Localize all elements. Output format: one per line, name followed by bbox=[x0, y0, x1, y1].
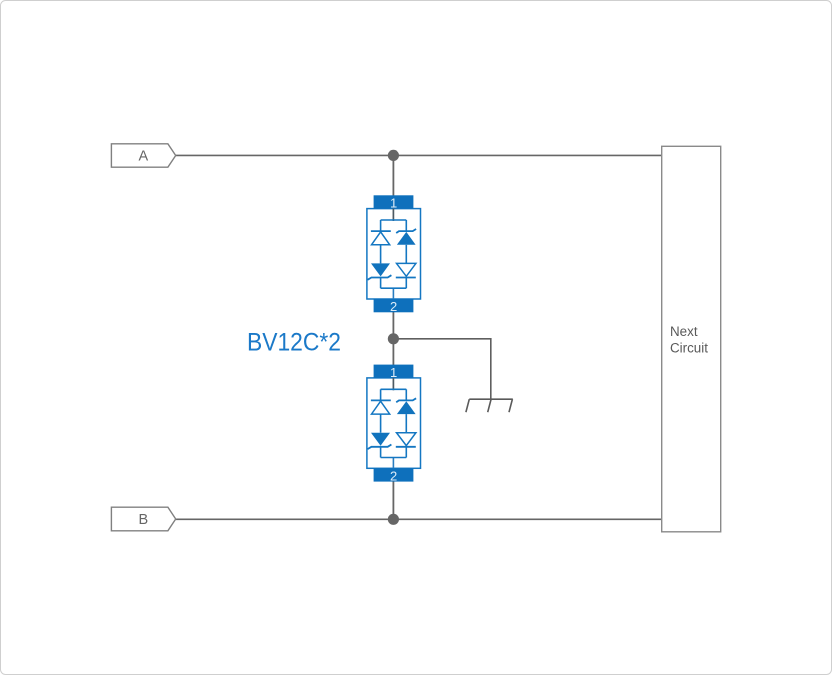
svg-text:A: A bbox=[138, 149, 148, 165]
svg-text:Circuit: Circuit bbox=[670, 340, 708, 355]
svg-text:2: 2 bbox=[390, 299, 397, 314]
svg-text:Next: Next bbox=[670, 324, 698, 339]
svg-text:BV12C*2: BV12C*2 bbox=[247, 329, 341, 357]
svg-text:1: 1 bbox=[390, 365, 397, 380]
svg-text:1: 1 bbox=[390, 196, 397, 211]
svg-text:B: B bbox=[138, 512, 148, 528]
svg-text:2: 2 bbox=[390, 469, 397, 484]
